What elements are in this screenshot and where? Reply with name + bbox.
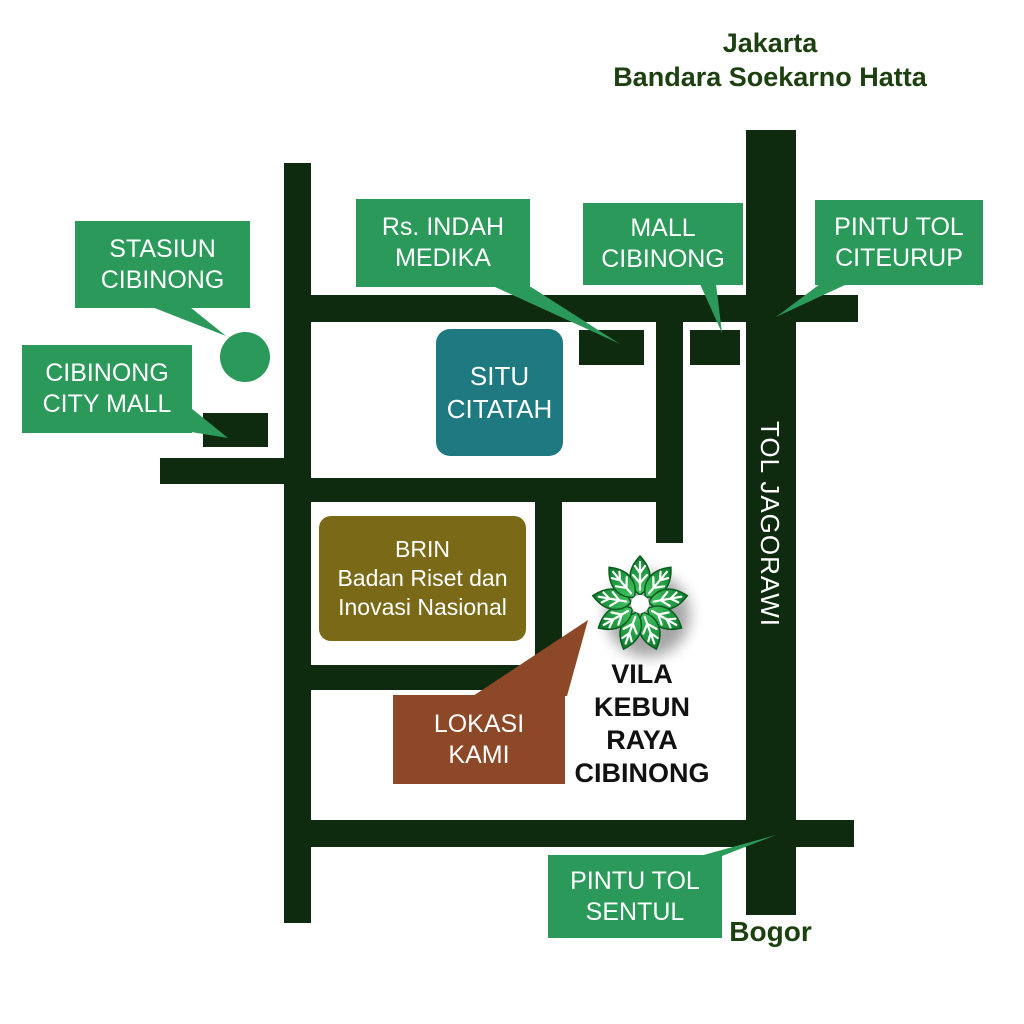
tol-jagorawi-road-label: TOL JAGORAWI xyxy=(754,419,786,629)
map-graphics xyxy=(0,0,1024,1024)
road-situ-east-vertical xyxy=(656,295,683,543)
cibinong-location-map: Jakarta Bandara Soekarno Hatta STASIUN C… xyxy=(0,0,1024,1024)
flower-logo-icon xyxy=(591,556,690,657)
callout-pintu-tol-citeurup: PINTU TOL CITEURUP xyxy=(815,200,983,285)
callout-mall-cibinong: MALL CIBINONG xyxy=(583,203,743,285)
road-bottom-horizontal xyxy=(284,820,854,847)
road-middle-horizontal xyxy=(284,478,683,502)
callout-pointer-stasiun xyxy=(152,307,226,336)
callout-cibinong-city-mall: CIBINONG CITY MALL xyxy=(22,345,192,433)
road-left-vertical xyxy=(284,163,311,923)
callout-stasiun-cibinong: STASIUN CIBINONG xyxy=(75,221,250,308)
destination-bogor-label: Bogor xyxy=(713,916,828,948)
area-situ-citatah: SITU CITATAH xyxy=(436,329,563,456)
station-circle-marker xyxy=(220,332,270,382)
vila-kebun-raya-cibinong-label: VILA KEBUN RAYA CIBINONG xyxy=(567,658,717,790)
callout-lokasi-kami: LOKASI KAMI xyxy=(393,695,565,784)
logo-center xyxy=(631,595,649,613)
callout-rs-indah-medika: Rs. INDAH MEDIKA xyxy=(356,199,530,287)
building-mall-cibinong xyxy=(690,330,740,365)
building-rs-indah-medika xyxy=(579,330,644,365)
callout-pintu-tol-sentul: PINTU TOL SENTUL xyxy=(548,855,722,938)
area-brin: BRIN Badan Riset dan Inovasi Nasional xyxy=(319,516,526,641)
destination-jakarta-label: Jakarta Bandara Soekarno Hatta xyxy=(555,26,985,94)
